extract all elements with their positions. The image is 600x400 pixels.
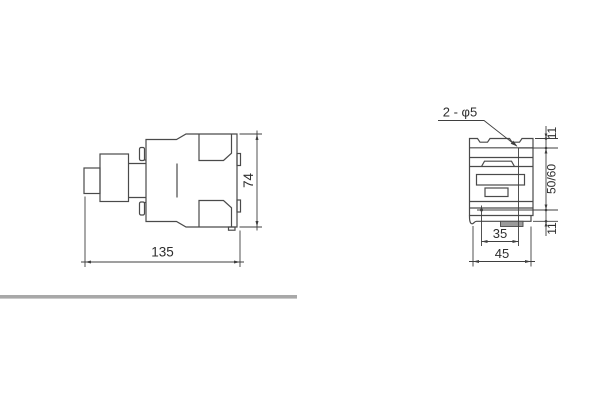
hole-spacing-dim-label: 50/60: [545, 164, 559, 194]
top-offset-dim-label: 11: [545, 126, 559, 139]
front-view-segment-lines: [470, 148, 534, 208]
vertical-dimension-stack: 11 50/60 11: [533, 126, 559, 236]
hole-callout-leader: [438, 121, 517, 147]
side-view-body-outline: [146, 134, 237, 227]
hole-callout-label: 2 - φ5: [443, 105, 477, 120]
hole-span-dim-label: 35: [493, 226, 507, 241]
side-view-end-cap: [84, 168, 100, 194]
side-view-neck: [129, 164, 147, 198]
side-view: 74 135: [81, 131, 262, 268]
side-view-terminal-bottom: [199, 201, 232, 227]
technical-drawing-canvas: 74 135 2 - φ5: [0, 0, 600, 400]
side-view-coil-block: [100, 154, 129, 202]
front-width-dim-label: 45: [495, 246, 509, 261]
front-view-small-plate: [485, 188, 508, 197]
contactor-dimension-drawing: 74 135 2 - φ5: [0, 0, 600, 400]
side-view-rail-clip-bottom: [237, 200, 241, 212]
width-dimension: 135: [81, 197, 244, 268]
front-view-label-plate: [477, 175, 525, 186]
front-view-body-outline: [470, 139, 534, 216]
separator-bar: [0, 295, 297, 299]
bottom-hole-mark: [480, 209, 483, 212]
front-view-tab: [482, 161, 515, 166]
side-view-width-dim-label: 135: [151, 245, 174, 260]
side-view-tab-top: [140, 148, 145, 161]
side-view-tab-bottom: [140, 202, 145, 215]
side-view-rail-clip-top: [237, 154, 241, 166]
hole-span-dimension: 35: [482, 226, 519, 243]
front-view: 2 - φ5 11 50/60 11 35 45: [438, 105, 559, 267]
bottom-offset-dim-label: 11: [545, 222, 559, 235]
side-view-foot-step: [229, 227, 236, 230]
hole-callout: 2 - φ5: [438, 105, 518, 147]
height-dimension: 74: [240, 131, 263, 231]
side-view-height-dim-label: 74: [241, 173, 256, 189]
side-view-terminal-top: [199, 135, 232, 161]
